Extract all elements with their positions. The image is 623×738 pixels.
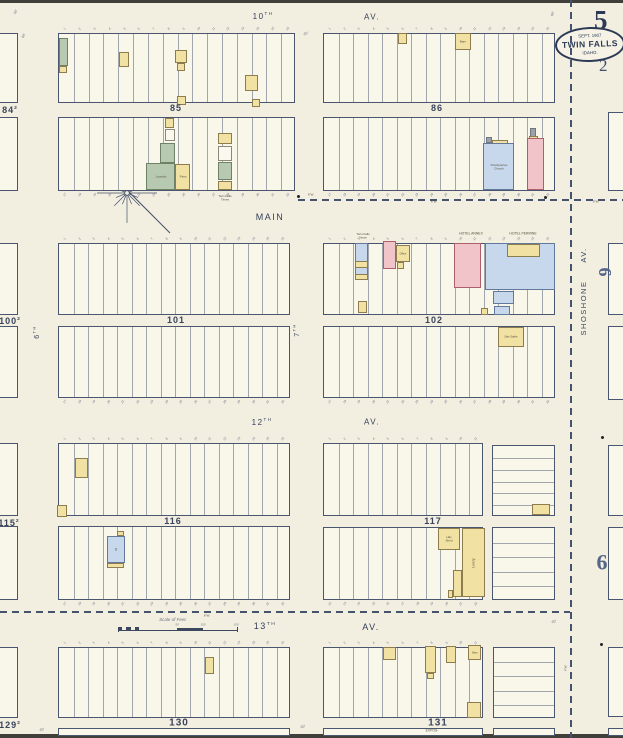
- lot-number: 11: [473, 27, 478, 32]
- lot-number: 15: [531, 237, 536, 242]
- lot-number: 7: [415, 237, 419, 241]
- block-84-sliver-upper: [0, 33, 18, 103]
- lot-line: [74, 527, 75, 599]
- lot-number: 11: [208, 237, 213, 242]
- building: [218, 181, 232, 190]
- lot-line: [103, 34, 104, 102]
- lot-line: [132, 527, 133, 599]
- lot-line: [262, 527, 263, 599]
- street-label: 7TH: [292, 323, 301, 337]
- block-number: 6: [595, 268, 615, 277]
- lot-number: 1: [328, 437, 332, 441]
- hydrant-dot: [601, 436, 604, 439]
- lot-number: 4: [372, 27, 376, 31]
- lot-line: [411, 34, 412, 102]
- lot-number: 8: [430, 27, 434, 31]
- lot-number: 10: [458, 237, 463, 242]
- lot-line: [262, 327, 263, 397]
- scale-bar-segment: [237, 627, 238, 632]
- annotation: 60': [550, 11, 556, 17]
- building-label: D: [115, 548, 118, 552]
- block-116-lower: [58, 526, 290, 600]
- annotation: 6"W.: [593, 200, 599, 203]
- lot-number: 27: [208, 602, 213, 607]
- lot-line: [262, 244, 263, 314]
- lot-number: 2: [343, 27, 347, 31]
- annotation: 60': [300, 724, 306, 729]
- lot-line: [262, 648, 263, 717]
- lot-number: 8: [430, 437, 434, 441]
- lot-number: 29: [241, 193, 246, 198]
- block-number: 6: [597, 551, 608, 576]
- lot-line: [277, 327, 278, 397]
- building: [481, 308, 488, 315]
- lot-line: [426, 34, 427, 102]
- building: [165, 129, 175, 141]
- lot-line: [204, 444, 205, 515]
- lot-line: [133, 34, 134, 102]
- lot-line: [266, 34, 267, 102]
- lot-line: [146, 444, 147, 515]
- lot-number: 23: [415, 400, 420, 405]
- lot-line: [469, 444, 470, 515]
- annotation: 60': [39, 727, 45, 732]
- lot-line: [133, 118, 134, 190]
- lot-line: [353, 528, 354, 599]
- lot-number: 13: [237, 437, 242, 442]
- lot-line: [469, 327, 470, 397]
- lot-number: 31: [531, 193, 536, 198]
- lot-number: 19: [430, 602, 435, 607]
- block-117-lower-east: [492, 527, 555, 600]
- lot-number: 22: [135, 400, 140, 405]
- building: [358, 301, 367, 313]
- lot-line: [192, 118, 193, 190]
- dashed-line: [0, 611, 570, 613]
- lot-line: [455, 444, 456, 515]
- lot-number: 24: [429, 400, 434, 405]
- lot-line: [397, 528, 398, 599]
- annotation: 6"W.: [308, 193, 314, 196]
- lot-line: [204, 327, 205, 397]
- lot-number: 25: [444, 400, 449, 405]
- block-number: 1002: [0, 316, 21, 326]
- lot-line: [175, 527, 176, 599]
- lot-number: 2: [343, 437, 347, 441]
- lot-line: [339, 244, 340, 314]
- lot-line: [117, 244, 118, 314]
- lot-line: [248, 327, 249, 397]
- lot-line: [161, 327, 162, 397]
- block-number: 131: [428, 717, 448, 728]
- lot-number: 1: [63, 237, 67, 241]
- annotation: EXPOS-: [426, 729, 439, 733]
- lot-number: 25: [179, 400, 184, 405]
- lot-line: [368, 118, 369, 190]
- adjacent-sheet-ref: 2: [17, 317, 21, 322]
- street-label: 6TH: [32, 325, 41, 339]
- lot-line: [339, 648, 340, 717]
- lot-line: [455, 327, 456, 397]
- lot-number: 30: [251, 400, 256, 405]
- lot-line: [382, 327, 383, 397]
- hydrant-dot: [544, 196, 547, 199]
- block-131-strip-east: [493, 728, 555, 736]
- lot-line: [277, 244, 278, 314]
- lot-number: 14: [516, 27, 521, 32]
- lot-number: 10: [193, 437, 198, 442]
- building: [218, 146, 232, 161]
- lot-line: [146, 327, 147, 397]
- lot-number: 2: [343, 641, 347, 645]
- lot-line: [190, 244, 191, 314]
- lot-number: 22: [400, 193, 405, 198]
- block-east-1: [608, 112, 623, 191]
- block-101-lower: [58, 326, 290, 398]
- lot-number: 12: [222, 437, 227, 442]
- lot-line: [103, 327, 104, 397]
- scale-bar-tick: 50: [175, 623, 178, 626]
- lot-number: 6: [401, 237, 405, 241]
- lot-number: 26: [458, 400, 463, 405]
- building: [427, 673, 434, 679]
- lot-line: [74, 34, 75, 102]
- ordinal-suffix: TH: [265, 11, 274, 16]
- lot-number: 6: [137, 27, 141, 31]
- lot-number: 16: [545, 27, 550, 32]
- hydrant-dot: [297, 195, 300, 198]
- building: [57, 505, 67, 517]
- lot-line: [132, 444, 133, 515]
- lot-number: 2: [78, 437, 82, 441]
- lot-number: 30: [255, 193, 260, 198]
- lot-line: [382, 34, 383, 102]
- building: [398, 33, 407, 44]
- block-115-sliver-upper: [0, 443, 18, 516]
- scale-bar-segment: [135, 627, 139, 631]
- building: [453, 570, 462, 597]
- annotation: 6"W.: [431, 200, 437, 203]
- lot-line: [248, 527, 249, 599]
- lot-number: 6: [401, 641, 405, 645]
- annotation: Twin Falls News: [356, 233, 369, 240]
- lot-number: 20: [371, 193, 376, 198]
- building-label: Presbyterian Church: [490, 163, 507, 170]
- lot-number: 11: [473, 237, 478, 242]
- lot-number: 1: [63, 437, 67, 441]
- lot-line: [339, 444, 340, 515]
- lot-line: [397, 444, 398, 515]
- lot-line: [204, 527, 205, 599]
- lot-number: 7: [415, 27, 419, 31]
- building: [119, 52, 129, 67]
- lot-line: [353, 444, 354, 515]
- lot-line: [161, 444, 162, 515]
- lot-line: [368, 648, 369, 717]
- lot-line: [219, 527, 220, 599]
- lot-line: [494, 662, 554, 663]
- lot-number: 7: [150, 641, 154, 645]
- lot-line: [382, 118, 383, 190]
- lot-number: 9: [444, 237, 448, 241]
- building: [59, 66, 67, 73]
- lot-number: 2: [343, 237, 347, 241]
- lot-number: 27: [208, 400, 213, 405]
- lot-line: [219, 327, 220, 397]
- building: [75, 458, 88, 478]
- lot-number: 30: [516, 193, 521, 198]
- lot-number: 29: [237, 602, 242, 607]
- building: [107, 563, 124, 568]
- lot-line: [74, 118, 75, 190]
- annotation: 60': [551, 619, 557, 624]
- lot-number: 12: [487, 237, 492, 242]
- lot-number: 17: [63, 602, 68, 607]
- block-86-upper: [323, 33, 555, 103]
- lot-number: 24: [164, 602, 169, 607]
- lot-line: [353, 118, 354, 190]
- lot-line: [175, 244, 176, 314]
- building-label: Laundry: [155, 175, 166, 178]
- street-label: MAIN: [256, 212, 285, 222]
- lot-number: 7: [416, 437, 420, 441]
- lot-line: [493, 482, 554, 483]
- lot-number: 20: [106, 602, 111, 607]
- lot-number: 25: [181, 193, 186, 198]
- lot-line: [440, 444, 441, 515]
- lot-line: [542, 327, 543, 397]
- block-number: 1152: [0, 518, 20, 528]
- top-sheet-edge: [0, 0, 623, 3]
- lot-number: 13: [241, 27, 246, 32]
- annotation: 60': [21, 33, 27, 39]
- building-label: Office: [400, 252, 407, 255]
- scale-bar-title: Scale of Feet.: [159, 617, 187, 622]
- lot-line: [493, 586, 554, 587]
- lot-number: 17: [401, 602, 406, 607]
- lot-line: [237, 118, 238, 190]
- lot-number: 21: [386, 400, 391, 405]
- lot-line: [233, 444, 234, 515]
- lot-number: 23: [415, 193, 420, 198]
- block-number: 842: [2, 105, 18, 115]
- lot-line: [132, 244, 133, 314]
- lot-number: 27: [473, 400, 478, 405]
- building-label: Hay Shed: [445, 536, 452, 543]
- lot-line: [117, 648, 118, 717]
- lot-number: 3: [357, 437, 361, 441]
- lot-line: [103, 444, 104, 515]
- building: [218, 133, 232, 144]
- scale-bar-segment: [126, 627, 130, 631]
- lot-number: 20: [444, 602, 449, 607]
- lot-line: [248, 244, 249, 314]
- lot-line: [368, 444, 369, 515]
- lot-line: [88, 244, 89, 314]
- block-117-upper-west: [323, 443, 483, 516]
- lot-line: [161, 244, 162, 314]
- block-number: 86: [431, 103, 443, 113]
- lot-number: 31: [266, 602, 271, 607]
- lot-number: 4: [372, 641, 376, 645]
- annotation: 60': [303, 31, 309, 36]
- lot-line: [118, 34, 119, 102]
- lot-number: 13: [237, 641, 242, 646]
- lot-line: [494, 691, 554, 692]
- lot-number: 18: [77, 602, 82, 607]
- block-100-sliver-upper: [0, 243, 18, 315]
- lot-number: 26: [458, 193, 463, 198]
- scale-bar-segment: [118, 627, 122, 631]
- lot-line: [146, 244, 147, 314]
- lot-number: 26: [193, 400, 198, 405]
- building: [218, 162, 232, 180]
- lot-line: [161, 648, 162, 717]
- building: [446, 646, 456, 663]
- lot-number: 32: [285, 193, 290, 198]
- lot-number: 28: [222, 602, 227, 607]
- lot-number: 9: [182, 27, 186, 31]
- lot-number: 31: [531, 400, 536, 405]
- lot-line: [426, 444, 427, 515]
- building: [177, 63, 185, 71]
- building: [165, 118, 174, 128]
- building: [175, 50, 187, 63]
- building: [448, 590, 453, 598]
- lot-line: [207, 118, 208, 190]
- building: [383, 241, 396, 269]
- lot-line: [146, 648, 147, 717]
- lot-number: 2: [78, 641, 82, 645]
- lot-number: 15: [270, 27, 275, 32]
- lot-number: 10: [459, 641, 464, 646]
- lot-number: 8: [165, 437, 169, 441]
- lot-line: [469, 118, 470, 190]
- lot-number: 14: [251, 237, 256, 242]
- lot-number: 1: [63, 27, 67, 31]
- lot-number: 26: [196, 193, 201, 198]
- ordinal-suffix: TH: [292, 323, 296, 331]
- block-east-2: [608, 243, 623, 315]
- lot-line: [192, 34, 193, 102]
- adjacent-sheet-ref: 2: [16, 519, 20, 524]
- lot-number: 8: [430, 237, 434, 241]
- lot-number: 14: [255, 27, 260, 32]
- lot-number: 15: [266, 437, 271, 442]
- lot-number: 10: [458, 27, 463, 32]
- lot-number: 28: [487, 193, 492, 198]
- lot-number: 20: [106, 400, 111, 405]
- lot-number: 12: [487, 27, 492, 32]
- lot-number: 13: [237, 237, 242, 242]
- lot-number: 5: [386, 27, 390, 31]
- lot-line: [339, 118, 340, 190]
- block-number: 102: [425, 315, 443, 325]
- lot-line: [411, 244, 412, 314]
- lot-line: [103, 648, 104, 717]
- lot-line: [74, 327, 75, 397]
- annotation: HOTEL ANNEX: [459, 232, 483, 236]
- street-label: AV.: [580, 247, 588, 262]
- lot-number: 32: [280, 400, 285, 405]
- building: [205, 657, 214, 674]
- lot-number: 14: [251, 437, 256, 442]
- lot-number: 10: [196, 27, 201, 32]
- lot-number: 18: [415, 602, 420, 607]
- lot-line: [277, 648, 278, 717]
- lot-number: 3: [357, 641, 361, 645]
- lot-number: 15: [266, 237, 271, 242]
- annotation: 4"W.: [564, 665, 567, 671]
- block-east-strip: [608, 728, 623, 736]
- lot-number: 10: [459, 437, 464, 442]
- block-east-4: [608, 445, 623, 516]
- lot-line: [426, 528, 427, 599]
- lot-line: [455, 118, 456, 190]
- lot-line: [103, 244, 104, 314]
- lot-number: 24: [164, 400, 169, 405]
- lot-line: [368, 528, 369, 599]
- lot-number: 27: [473, 193, 478, 198]
- block-number: 117: [424, 516, 442, 526]
- lot-number: 25: [444, 193, 449, 198]
- lot-number: 18: [77, 400, 82, 405]
- lot-number: 24: [429, 193, 434, 198]
- street-label: 10TH: [253, 12, 274, 22]
- lot-number: 1: [328, 27, 332, 31]
- lot-line: [353, 327, 354, 397]
- building: [454, 243, 481, 288]
- building: [355, 274, 368, 280]
- dashed-line: [570, 0, 572, 738]
- building: [467, 702, 481, 718]
- lot-line: [277, 527, 278, 599]
- hydrant-dot: [600, 643, 603, 646]
- lot-number: 15: [531, 27, 536, 32]
- lot-number: 7: [152, 27, 156, 31]
- lot-line: [339, 34, 340, 102]
- lot-line: [161, 527, 162, 599]
- block-84-sliver-lower: [0, 117, 18, 191]
- lot-number: 9: [445, 437, 449, 441]
- lot-line: [88, 327, 89, 397]
- block-131-strip-west: [323, 728, 483, 736]
- lot-line: [237, 34, 238, 102]
- street-label: SHOSHONE: [580, 281, 588, 336]
- lot-line: [222, 34, 223, 102]
- adjacent-sheet-ref: 2: [17, 721, 21, 726]
- lot-number: 12: [222, 237, 227, 242]
- lot-line: [248, 648, 249, 717]
- lot-number: 19: [357, 400, 362, 405]
- lot-number: 10: [193, 641, 198, 646]
- scale-bar-segment: [177, 628, 203, 631]
- lot-number: 23: [150, 400, 155, 405]
- block-number: 101: [167, 315, 185, 325]
- lot-line: [89, 118, 90, 190]
- lot-line: [204, 244, 205, 314]
- lot-number: 11: [473, 437, 478, 442]
- lot-number: 22: [473, 602, 478, 607]
- lot-number: 9: [179, 437, 183, 441]
- block-east-6: [608, 647, 623, 717]
- lot-line: [397, 34, 398, 102]
- lot-number: 19: [357, 193, 362, 198]
- lot-line: [411, 118, 412, 190]
- lot-line: [397, 118, 398, 190]
- lot-line: [88, 527, 89, 599]
- block-number: 85: [170, 103, 182, 113]
